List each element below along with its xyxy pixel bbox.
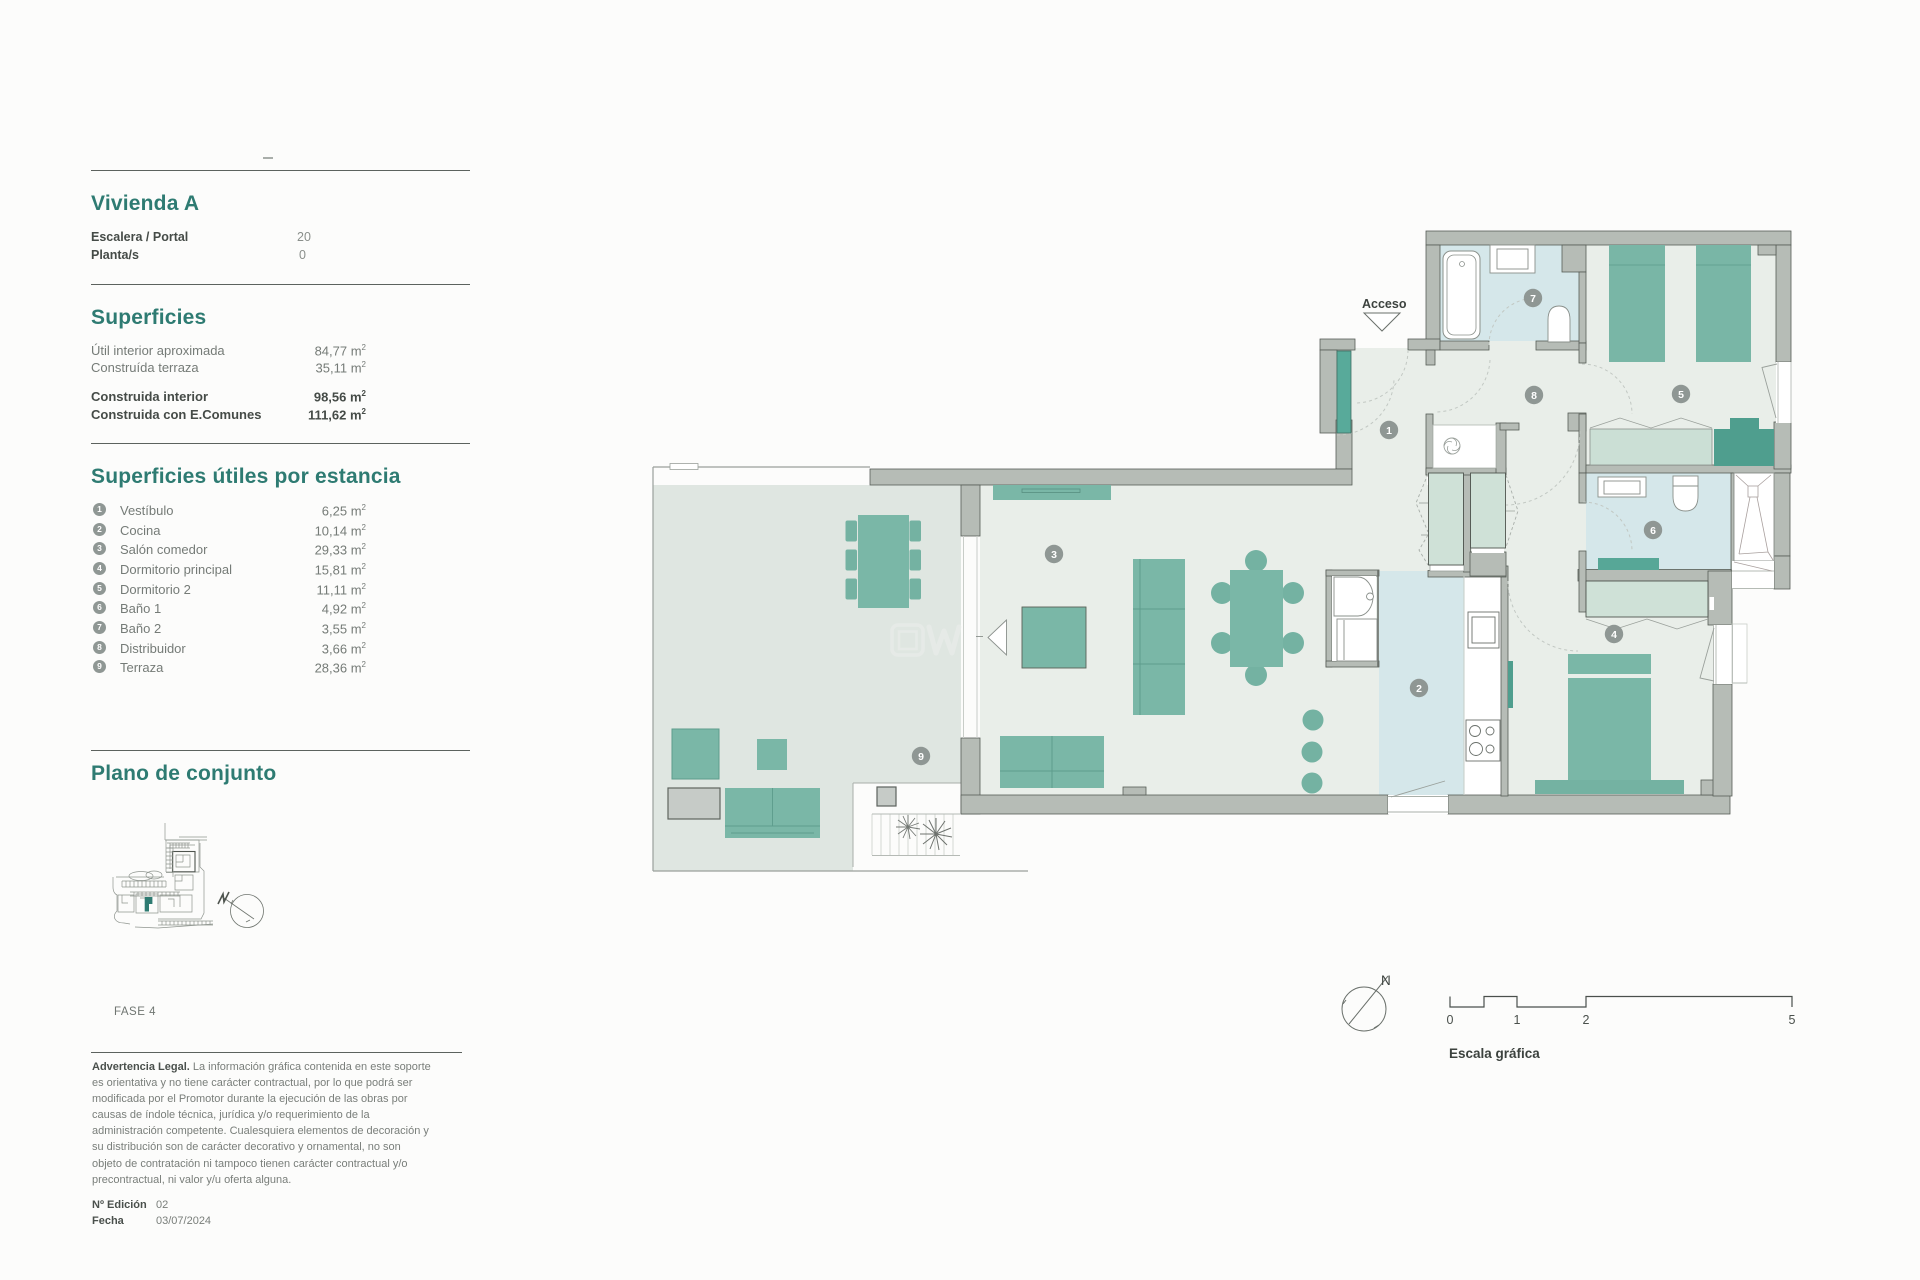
svg-text:0: 0 xyxy=(1447,1013,1454,1027)
svg-text:3: 3 xyxy=(1051,549,1057,561)
svg-text:5: 5 xyxy=(1789,1013,1796,1027)
svg-text:Acceso: Acceso xyxy=(1362,297,1407,311)
svg-text:5: 5 xyxy=(1678,389,1684,401)
svg-text:6: 6 xyxy=(1650,525,1656,537)
svg-text:2: 2 xyxy=(1583,1013,1590,1027)
svg-text:9: 9 xyxy=(918,751,924,763)
svg-text:Escala gráfica: Escala gráfica xyxy=(1449,1046,1540,1061)
svg-text:N: N xyxy=(1381,973,1391,988)
svg-text:2: 2 xyxy=(1416,683,1422,695)
svg-text:4: 4 xyxy=(1611,629,1617,641)
svg-text:1: 1 xyxy=(1514,1013,1521,1027)
svg-text:1: 1 xyxy=(1386,425,1392,437)
svg-text:7: 7 xyxy=(1530,293,1536,305)
svg-text:8: 8 xyxy=(1531,390,1537,402)
